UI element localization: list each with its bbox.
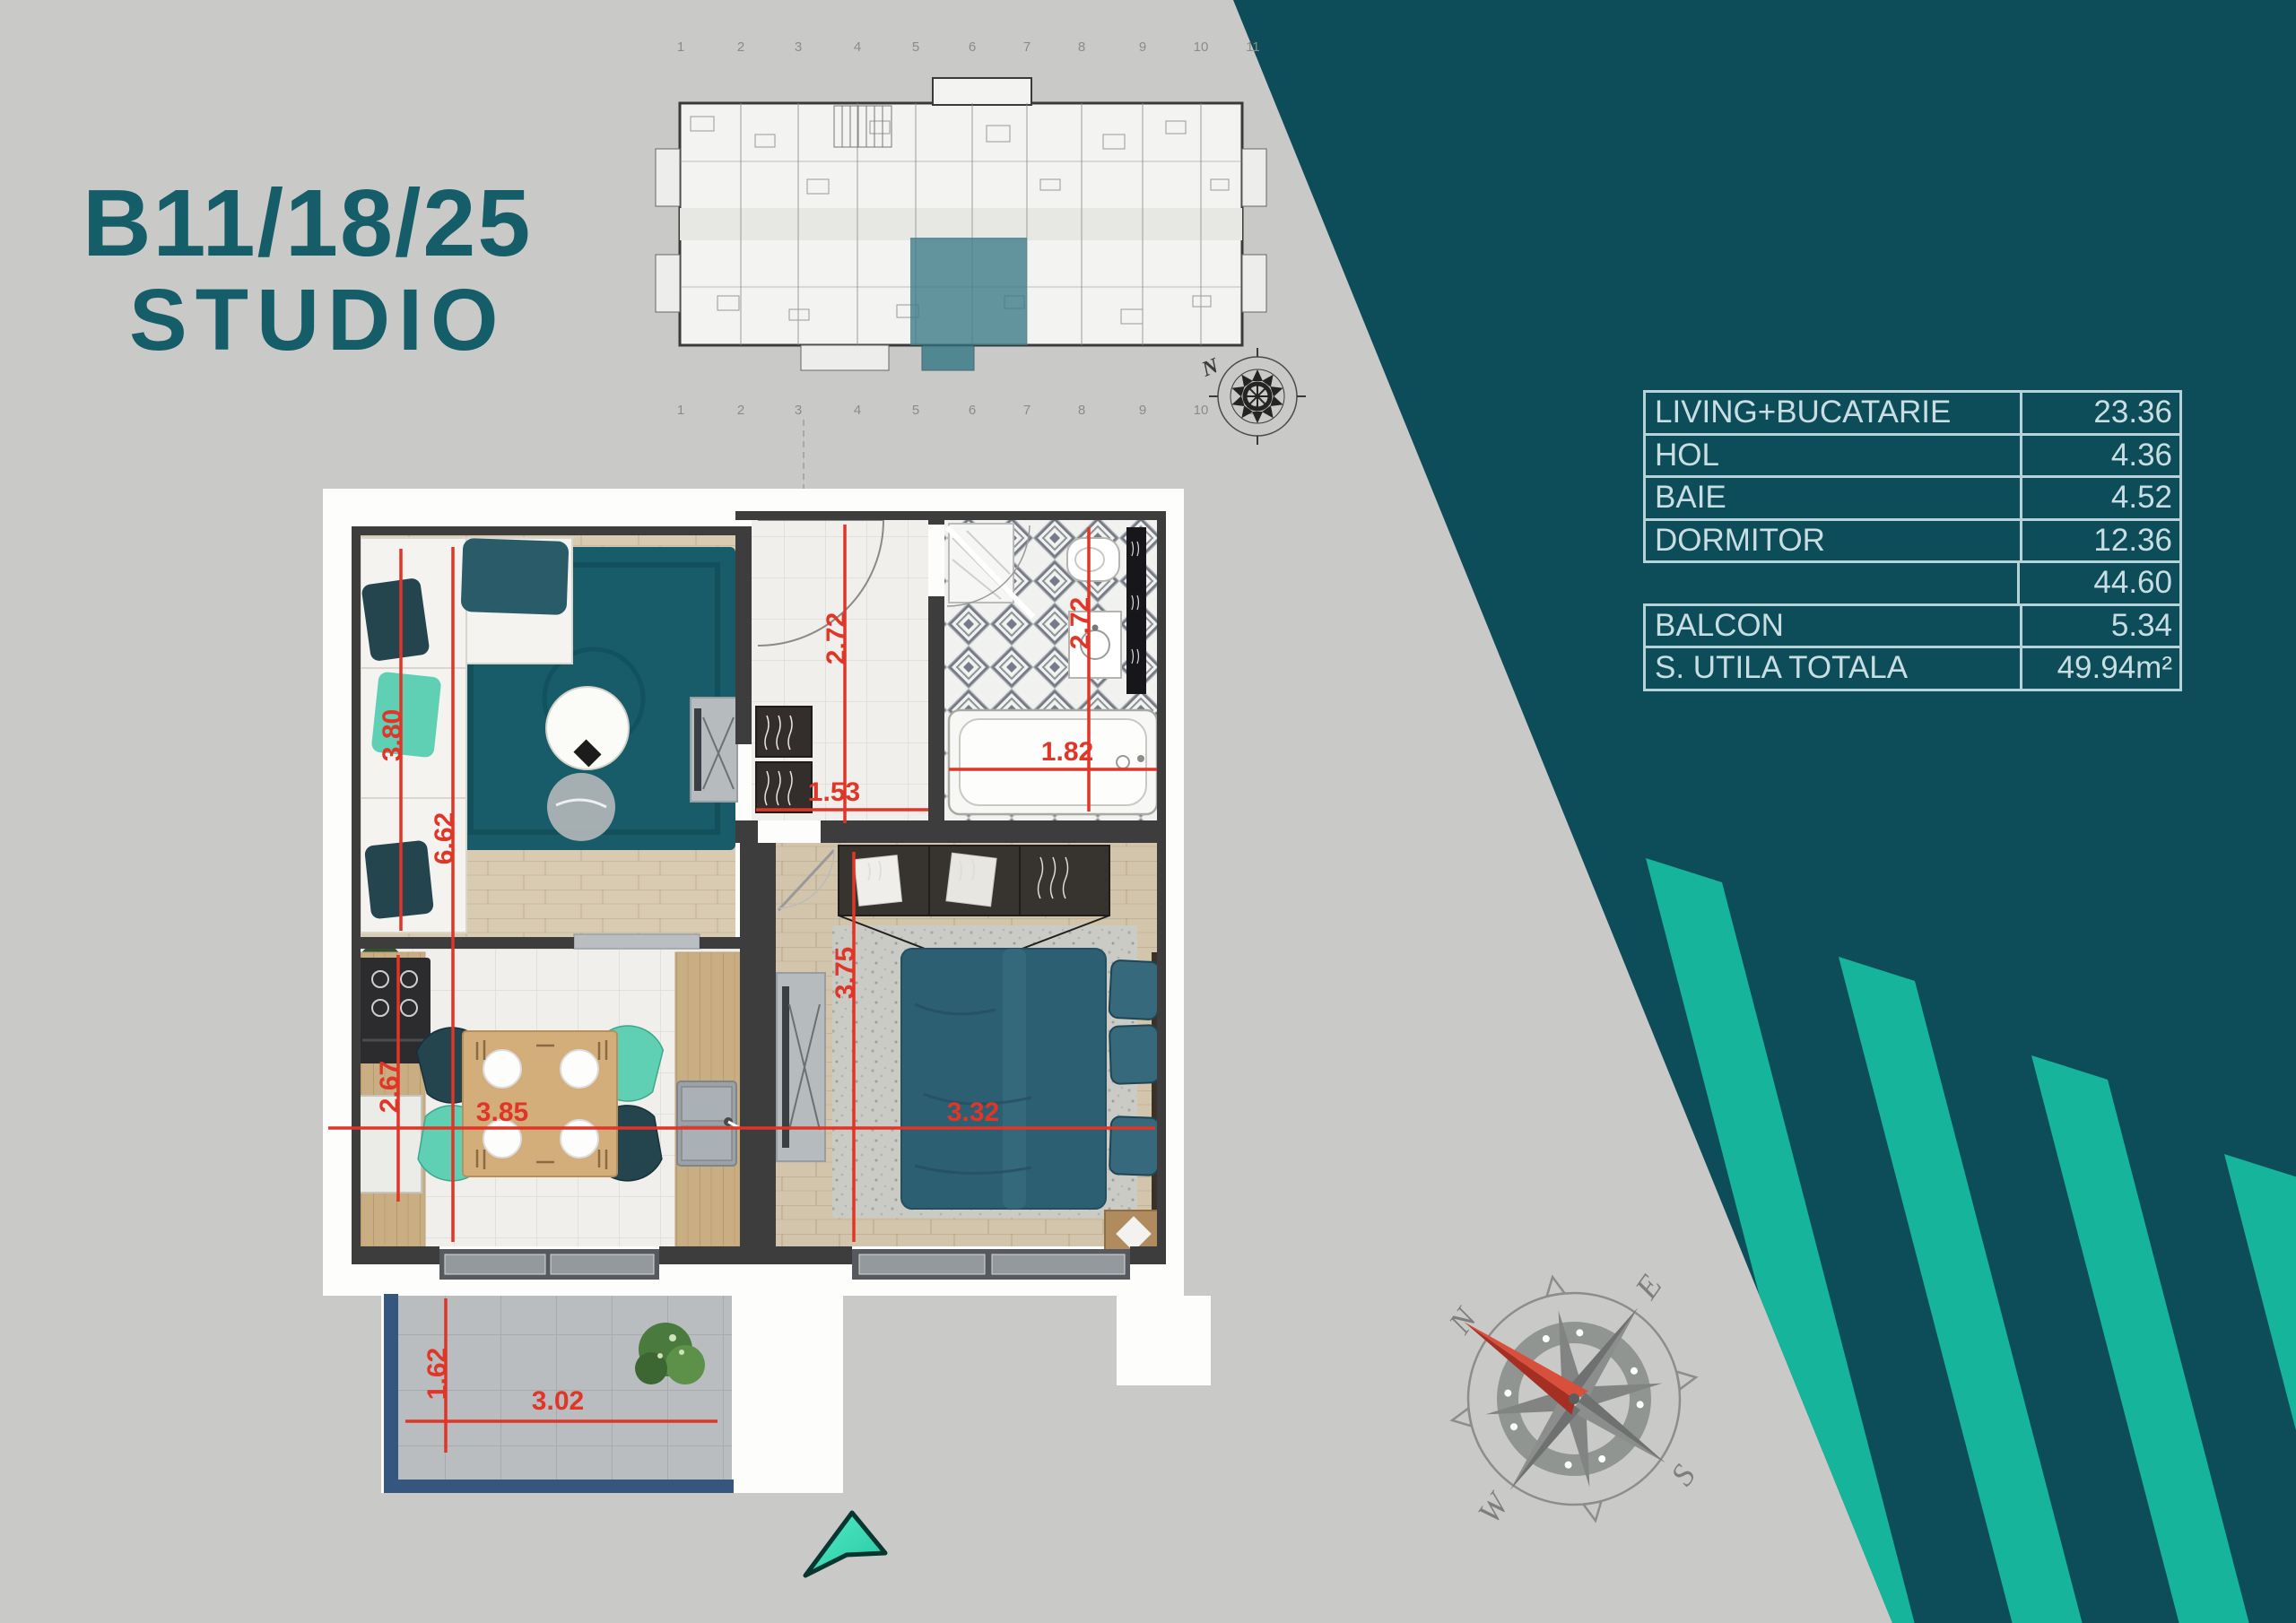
grid-number: 3 — [795, 403, 802, 418]
grid-numbers-top: 1 2 3 4 5 6 7 8 9 10 11 — [677, 39, 1260, 55]
grid-number: 9 — [1139, 39, 1146, 55]
bed-pillow — [1109, 960, 1160, 1020]
pass-through-sill — [574, 934, 700, 949]
grid-number: 5 — [912, 39, 919, 55]
sink — [677, 1081, 746, 1166]
grid-number: 1 — [677, 39, 684, 55]
bed — [901, 949, 1164, 1214]
grid-number: 6 — [969, 403, 976, 418]
bed-pillow — [1109, 1116, 1160, 1176]
dim-balcony-height: 1.62 — [422, 1348, 452, 1400]
balcony-outline-bottom — [384, 1480, 734, 1493]
dim-kitchen-width: 3.85 — [476, 1098, 528, 1127]
tv-unit — [777, 973, 825, 1161]
compass-west-label: W — [1471, 1485, 1518, 1530]
areas-table: LIVING+BUCATARIE 23.36 HOL 4.36 BAIE 4.5… — [1643, 390, 2182, 691]
room-area: 44.60 — [2020, 563, 2179, 603]
pillow-dark — [364, 840, 434, 920]
room-label — [1643, 563, 2020, 603]
building-key-plan: 1 2 3 4 5 6 7 8 9 10 11 — [656, 39, 1266, 516]
dim-kitchen-height: 2.67 — [375, 1061, 404, 1113]
grid-number: 4 — [854, 403, 861, 418]
grid-number: 3 — [795, 39, 802, 55]
bedroom-window-frame — [852, 1249, 1130, 1280]
dim-total-height: 6.62 — [430, 812, 459, 864]
bed-pillow — [1109, 1025, 1160, 1084]
compass-north-label: N — [1441, 1300, 1484, 1341]
grid-number: 4 — [854, 39, 861, 55]
table-row: LIVING+BUCATARIE 23.36 — [1643, 393, 2182, 436]
unit-code: B11/18/25 — [83, 176, 532, 271]
balcony-door-frame — [439, 1249, 659, 1280]
grid-number: 11 — [1246, 39, 1260, 55]
dim-bedroom-height: 3.75 — [831, 947, 860, 999]
grid-number: 2 — [737, 403, 744, 418]
room-label: BALCON — [1646, 606, 2022, 647]
room-area: 12.36 — [2022, 521, 2179, 561]
table-row: BAIE 4.52 — [1643, 478, 2182, 521]
grid-number: 10 — [1194, 39, 1209, 55]
compass-east-label: E — [1628, 1269, 1669, 1306]
room-area: 4.36 — [2022, 436, 2179, 476]
table-row: DORMITOR 12.36 — [1643, 521, 2182, 564]
tv-panel — [691, 698, 737, 802]
room-area: 49.94m² — [2022, 648, 2179, 689]
dim-hall-height: 2.72 — [822, 612, 851, 664]
room-label: DORMITOR — [1646, 521, 2022, 561]
grid-numbers-bottom: 1 2 3 4 5 6 7 8 9 10 11 — [677, 403, 1260, 418]
table-row: BALCON 5.34 — [1643, 606, 2182, 649]
toilet — [1067, 538, 1119, 581]
key-plan-compass: N — [1198, 348, 1306, 445]
compass-rose: N E S W — [1362, 1193, 1781, 1609]
page: 1 2 3 4 5 6 7 8 9 10 11 — [0, 0, 2296, 1623]
room-label: S. UTILA TOTALA — [1646, 648, 2022, 689]
dim-bath-width: 1.82 — [1041, 737, 1093, 767]
compass-south-label: S — [1664, 1458, 1702, 1492]
room-area: 5.34 — [2022, 606, 2179, 647]
room-area: 23.36 — [2022, 393, 2179, 433]
grid-number: 1 — [677, 403, 684, 418]
unit-type: STUDIO — [129, 276, 532, 363]
grid-number: 8 — [1078, 403, 1085, 418]
teal-wedge — [1233, 0, 2296, 1623]
grid-number: 5 — [912, 403, 919, 418]
grid-number: 8 — [1078, 39, 1085, 55]
room-label: LIVING+BUCATARIE — [1646, 393, 2022, 433]
room-label: BAIE — [1646, 478, 2022, 518]
dim-bath-height: 2.72 — [1065, 597, 1095, 649]
dim-bedroom-width: 3.32 — [947, 1098, 999, 1127]
balcony-outline-left — [384, 1294, 398, 1493]
wardrobe — [839, 846, 1109, 916]
dim-living-height: 3.80 — [378, 709, 407, 761]
table-row-subtotal: 44.60 — [1643, 563, 2182, 606]
pillow-dark — [361, 577, 430, 662]
small-compass-north-label: N — [1198, 353, 1223, 382]
room-label: HOL — [1646, 436, 2022, 476]
table-row-total: S. UTILA TOTALA 49.94m² — [1643, 648, 2182, 691]
blanket — [461, 538, 570, 615]
grid-number: 10 — [1194, 403, 1209, 418]
title-block: B11/18/25 STUDIO — [83, 176, 532, 363]
grid-number: 7 — [1023, 403, 1031, 418]
highlighted-unit-balcony — [922, 345, 974, 370]
location-marker — [805, 1513, 885, 1575]
highlighted-unit — [910, 238, 1027, 345]
apartment-plan: 3.80 6.62 2.72 1.53 1.82 2.72 2.67 3.85 … — [323, 489, 1211, 1493]
room-area: 4.52 — [2022, 478, 2179, 518]
dim-hall-width: 1.53 — [808, 777, 860, 807]
grid-number: 6 — [969, 39, 976, 55]
table-row: HOL 4.36 — [1643, 436, 2182, 479]
grid-number: 2 — [737, 39, 744, 55]
grid-number: 9 — [1139, 403, 1146, 418]
towel-rack — [1126, 527, 1146, 694]
dim-balcony-width: 3.02 — [532, 1386, 584, 1416]
grid-number: 7 — [1023, 39, 1031, 55]
